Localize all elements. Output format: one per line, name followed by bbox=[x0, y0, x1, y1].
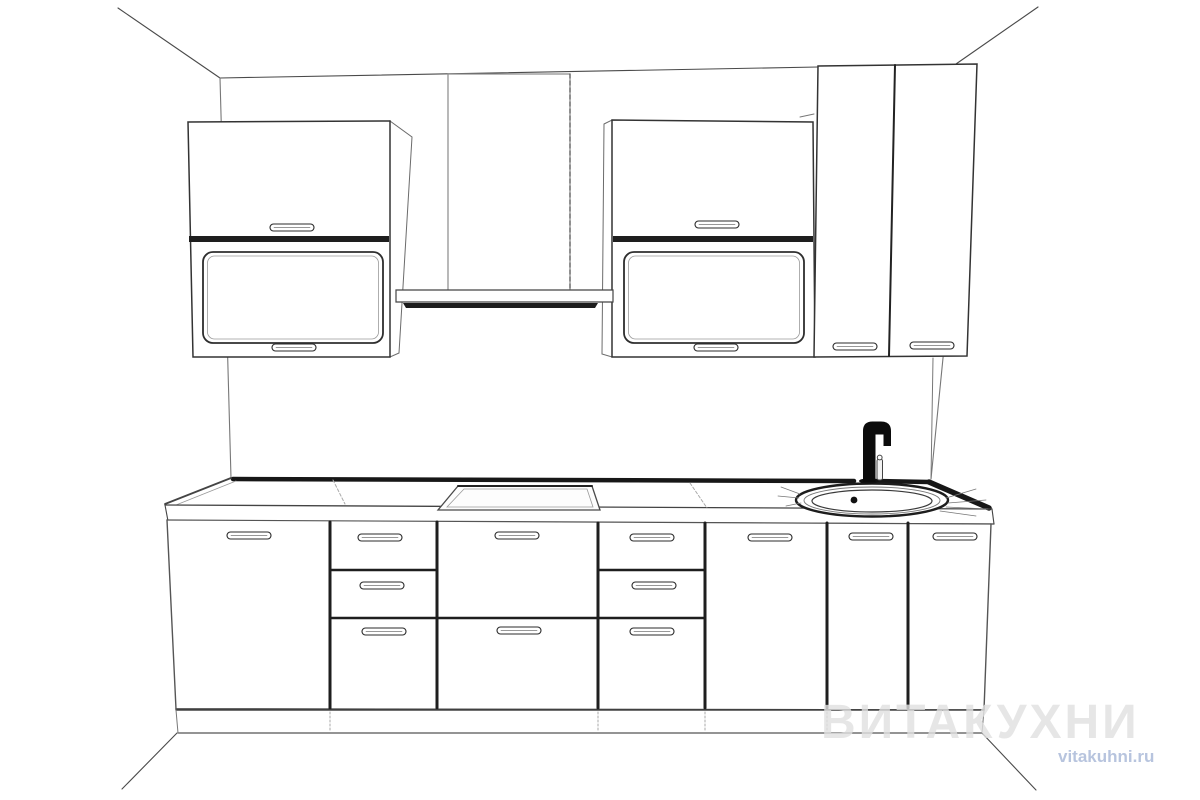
drawer-handle bbox=[630, 628, 674, 635]
drawer-handle bbox=[632, 582, 676, 589]
faucet bbox=[859, 422, 891, 484]
hood-chimney bbox=[448, 74, 570, 291]
watermark-site: vitakuhni.ru bbox=[1058, 747, 1154, 767]
cabinet-side-panel bbox=[390, 121, 412, 357]
door-handle bbox=[849, 533, 893, 540]
kitchen-line-art bbox=[0, 0, 1200, 800]
sink-drain bbox=[851, 497, 858, 504]
countertop bbox=[165, 422, 994, 525]
door-handle bbox=[748, 534, 792, 541]
drawer-handle bbox=[362, 628, 406, 635]
door-divider bbox=[189, 236, 389, 242]
door-handle bbox=[272, 344, 316, 351]
drawer-handle bbox=[495, 532, 539, 539]
door-handle bbox=[270, 224, 314, 231]
hood-canopy bbox=[396, 290, 613, 308]
wall-cabinet-left bbox=[188, 121, 412, 357]
base-cabinets bbox=[167, 520, 991, 710]
watermark-brand: ВИТАКУХНИ bbox=[821, 695, 1140, 750]
base-door-wide bbox=[748, 534, 792, 541]
drawer-handle bbox=[358, 534, 402, 541]
door-divider bbox=[613, 236, 813, 242]
door-handle bbox=[933, 533, 977, 540]
cabinet-front bbox=[814, 64, 977, 357]
door-handle bbox=[694, 344, 738, 351]
door-handle bbox=[227, 532, 271, 539]
tall-wall-cabinet bbox=[800, 64, 977, 357]
kitchen-render: ВИТАКУХНИ vitakuhni.ru bbox=[0, 0, 1200, 800]
base-door-left bbox=[227, 532, 271, 539]
door-handle bbox=[910, 342, 954, 349]
drawer-handle bbox=[497, 627, 541, 634]
drawer-handle bbox=[360, 582, 404, 589]
wall-cabinet-right bbox=[602, 120, 815, 357]
cabinet-side-panel bbox=[602, 120, 612, 357]
drawer-handle bbox=[630, 534, 674, 541]
door-handle bbox=[695, 221, 739, 228]
cooktop bbox=[438, 486, 600, 510]
door-handle bbox=[833, 343, 877, 350]
faucet-lever bbox=[877, 459, 883, 480]
